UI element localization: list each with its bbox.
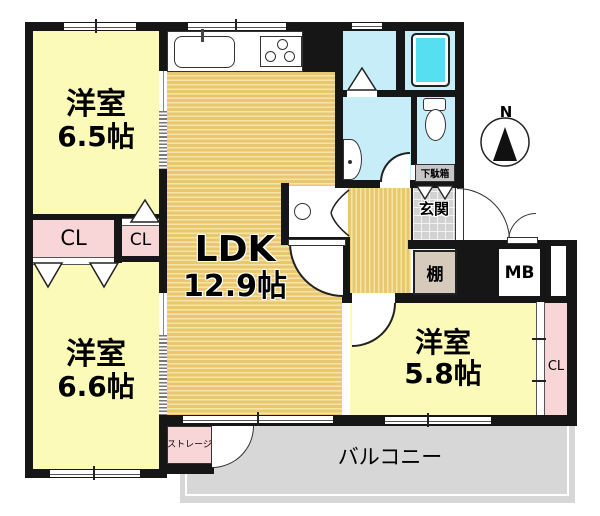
wall: [335, 22, 343, 188]
washer-hookup-icon: [294, 203, 311, 220]
door-tick: [532, 380, 546, 382]
entry-door-arc-main: [457, 188, 510, 241]
room-label-ldk: LDK 12.9帖: [155, 226, 315, 308]
wall: [159, 31, 167, 71]
shoe-cabinet: 下駄箱: [415, 164, 455, 182]
window-tick: [95, 19, 97, 33]
window-tick: [93, 466, 95, 480]
bathtub: [411, 33, 450, 87]
window: [50, 470, 140, 477]
wall: [455, 22, 464, 190]
closet-door: [536, 302, 545, 415]
room-name: 洋室: [415, 327, 471, 358]
burner-icon: [284, 51, 295, 62]
room-name: LDK: [195, 230, 276, 270]
entrance-label: 玄関: [411, 198, 457, 220]
room-name: 洋室: [66, 88, 126, 122]
meter-box: MB: [499, 249, 540, 296]
closet-se-label: CL: [545, 358, 567, 376]
closet-door-triangle-icon: [88, 261, 120, 289]
wall: [396, 30, 405, 97]
kitchen-sink: [174, 36, 235, 68]
closet-nw-small-label: CL: [122, 226, 159, 256]
burner-icon: [265, 51, 276, 62]
entry-door-leaf: [507, 237, 538, 244]
wall: [114, 214, 122, 263]
room-label-bedroom-nw: 洋室 6.5帖: [36, 78, 156, 162]
wall: [25, 22, 33, 478]
faucet-icon: [201, 29, 204, 42]
floor-plan: 棚 MB 下駄箱: [0, 0, 600, 516]
room-area: 12.9帖: [183, 270, 287, 304]
door-opening: [352, 293, 395, 303]
shelf: 棚: [413, 250, 457, 295]
room-area: 6.5帖: [57, 121, 135, 152]
toilet-bowl: [425, 109, 446, 141]
compass-north-label: N: [496, 103, 516, 121]
window: [385, 417, 491, 424]
shelf-label: 棚: [427, 260, 444, 285]
window: [352, 23, 382, 29]
wall: [567, 303, 577, 424]
balcony-label: バルコニー: [290, 444, 490, 472]
compass: [479, 116, 531, 168]
room-name: 洋室: [66, 338, 126, 372]
accordion-door: [159, 111, 167, 169]
shoe-cabinet-label: 下駄箱: [421, 166, 450, 180]
door-tick: [532, 338, 546, 340]
window-tick: [427, 413, 429, 427]
bifold-door-icon: [327, 187, 351, 239]
room-area: 6.6帖: [57, 371, 135, 402]
hallway-floor: [348, 186, 411, 293]
room-label-bedroom-se: 洋室 5.8帖: [352, 318, 534, 398]
room-area: 5.8帖: [404, 358, 482, 389]
pipe-slot: [551, 246, 566, 296]
accordion-door: [159, 335, 167, 415]
storage-label: ストレージ: [167, 426, 212, 464]
room-label-bedroom-sw: 洋室 6.6帖: [36, 328, 156, 412]
window-tick: [257, 412, 259, 426]
wall: [122, 256, 159, 262]
washbasin-drain-icon: [348, 160, 352, 164]
folding-door-triangle-icon: [346, 66, 378, 92]
wall: [159, 464, 214, 474]
sliding-door: [159, 71, 167, 111]
wall: [411, 97, 417, 165]
window: [64, 23, 136, 30]
closet-door-triangle-icon: [32, 261, 64, 289]
burner-icon: [277, 39, 288, 50]
closet-door-triangle-icon: [129, 198, 161, 224]
meter-box-label: MB: [505, 263, 535, 283]
closet-nw-label: CL: [33, 220, 114, 258]
